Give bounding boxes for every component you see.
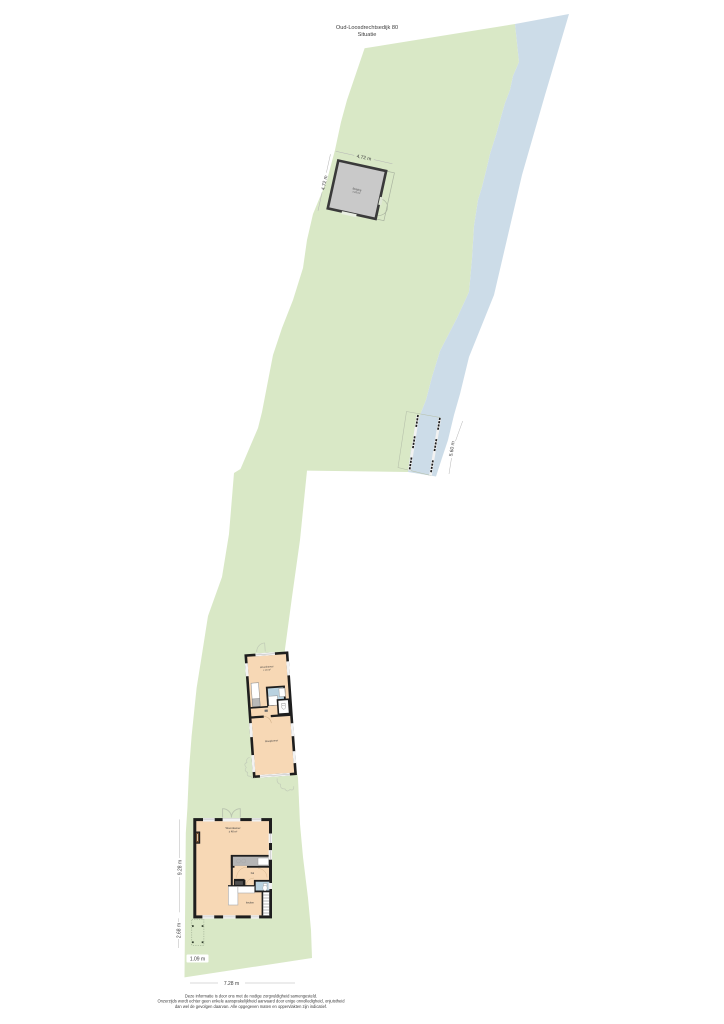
svg-text:Woonkamer: Woonkamer [225, 826, 240, 830]
svg-text:keuken: keuken [246, 902, 255, 905]
svg-text:2.68 m: 2.68 m [176, 923, 182, 938]
svg-text:Oud-Loosdrechtsedijk 80: Oud-Loosdrechtsedijk 80 [336, 25, 398, 31]
svg-text:7.28 m: 7.28 m [224, 981, 239, 987]
svg-text:± 48 m²: ± 48 m² [229, 830, 238, 833]
svg-text:1.09 m: 1.09 m [190, 957, 205, 963]
svg-text:9.28 m: 9.28 m [178, 860, 184, 875]
svg-text:hal: hal [251, 872, 255, 875]
svg-text:Situatie: Situatie [358, 32, 377, 38]
svg-text:± 20 m²: ± 20 m² [263, 668, 271, 672]
svg-text:dan wel de gevolgen daarvan. A: dan wel de gevolgen daarvan. Alle opgege… [175, 1004, 327, 1009]
